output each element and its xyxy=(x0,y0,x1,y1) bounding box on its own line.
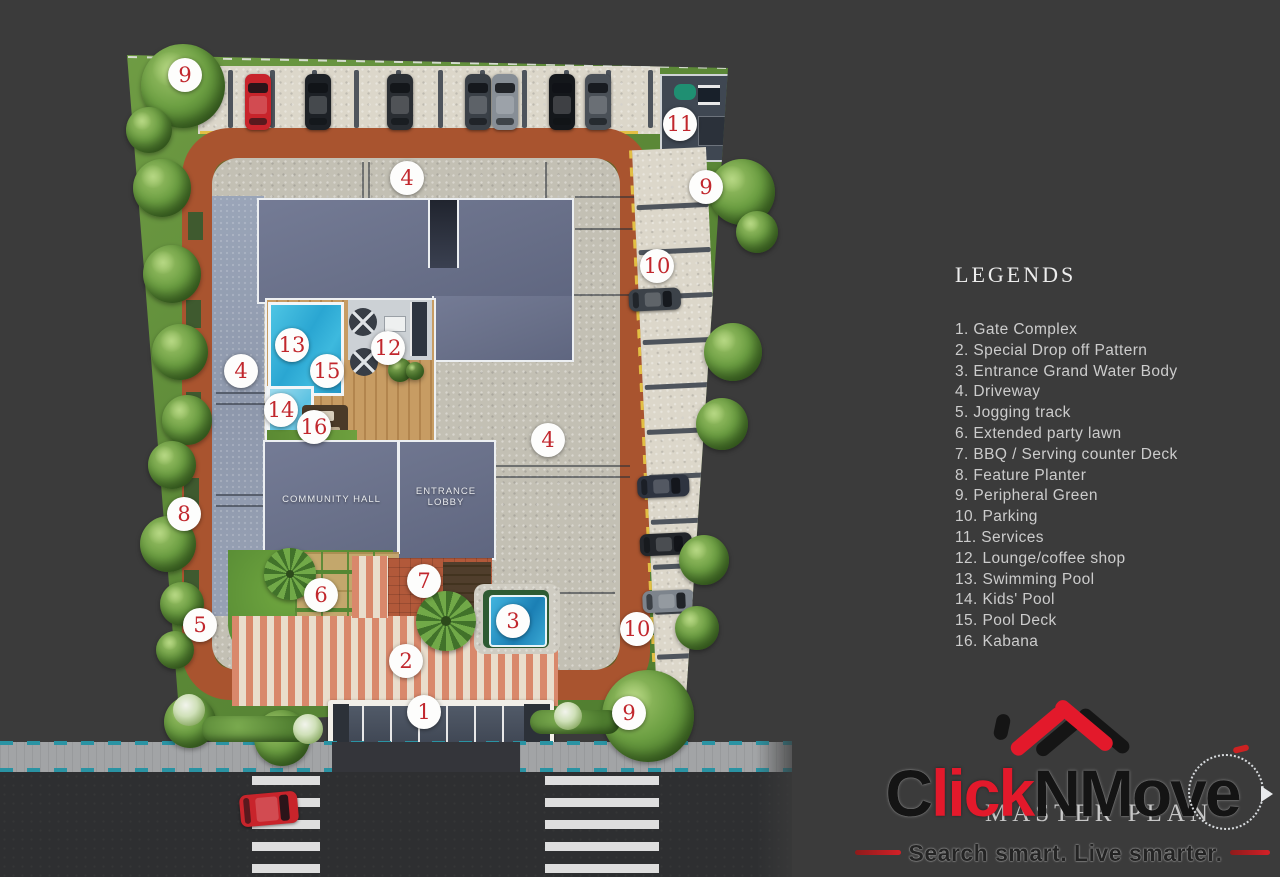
tagline-dash-right xyxy=(1230,850,1270,855)
legend-list: 1. Gate Complex2. Special Drop off Patte… xyxy=(955,320,1275,653)
plan-marker-3: 3 xyxy=(496,604,530,638)
building-notch xyxy=(428,200,459,268)
legend-item-6: 6. Extended party lawn xyxy=(955,424,1275,445)
feature-planter xyxy=(188,212,203,240)
legend-item-11: 11. Services xyxy=(955,528,1275,549)
flower-bush-icon xyxy=(173,694,205,726)
plan-marker-2: 2 xyxy=(389,644,423,678)
car-windshield xyxy=(279,794,290,821)
legend-item-1: 1. Gate Complex xyxy=(955,320,1275,341)
pavement-joint xyxy=(545,162,547,198)
plan-marker-9: 9 xyxy=(689,170,723,204)
services-equipment-icon xyxy=(674,84,696,100)
logo-seg-c: C xyxy=(885,756,931,830)
logo-tagline: Search smart. Live smarter. xyxy=(845,840,1280,867)
master-plan-page: COMMUNITY HALL ENTRANCE LOBBY xyxy=(0,0,1280,877)
crosswalk-right xyxy=(545,776,659,877)
tree-icon xyxy=(143,245,201,303)
stall-divider xyxy=(522,70,527,128)
entrance-lobby-label: ENTRANCE LOBBY xyxy=(400,486,492,508)
plan-marker-7: 7 xyxy=(407,564,441,598)
legend-item-13: 13. Swimming Pool xyxy=(955,570,1275,591)
community-hall-label: COMMUNITY HALL xyxy=(265,494,398,505)
car-rear-window xyxy=(243,798,251,824)
tree-icon xyxy=(133,159,191,217)
plan-marker-12: 12 xyxy=(371,331,405,365)
pavement-joint xyxy=(216,403,266,405)
tree-icon xyxy=(126,107,172,153)
plan-marker-10: 10 xyxy=(640,249,674,283)
legend-item-14: 14. Kids' Pool xyxy=(955,590,1275,611)
plan-marker-4: 4 xyxy=(224,354,258,388)
building-upper-block xyxy=(257,198,574,304)
tree-icon xyxy=(148,441,196,489)
legend-item-7: 7. BBQ / Serving counter Deck xyxy=(955,445,1275,466)
logo-seg-nmov: NMov xyxy=(1033,756,1205,830)
pavement-joint xyxy=(216,392,266,394)
plan-marker-6: 6 xyxy=(304,578,338,612)
building-upper-right-wing xyxy=(432,296,574,362)
plan-marker-14: 14 xyxy=(264,393,298,427)
legend-panel: LEGENDS 1. Gate Complex2. Special Drop o… xyxy=(955,262,1275,653)
stall-divider xyxy=(648,70,653,128)
stall-divider xyxy=(354,70,359,128)
palm-tree-icon xyxy=(416,591,476,651)
legend-item-3: 3. Entrance Grand Water Body xyxy=(955,362,1275,383)
tree-icon xyxy=(736,211,778,253)
logo-seg-lick: lick xyxy=(931,756,1033,830)
parked-car xyxy=(492,74,518,130)
tree-icon xyxy=(152,324,208,380)
parked-car xyxy=(549,74,575,130)
parked-car xyxy=(465,74,491,130)
logo-wordmark: ClickNMove xyxy=(845,760,1280,826)
plan-marker-13: 13 xyxy=(275,328,309,362)
coffee-counter xyxy=(410,302,427,356)
stall-divider xyxy=(228,70,233,128)
pavement-joint xyxy=(368,162,370,198)
plan-marker-1: 1 xyxy=(407,695,441,729)
parked-car xyxy=(585,74,611,130)
parasol-icon xyxy=(349,308,377,336)
parked-car xyxy=(305,74,331,130)
plan-marker-5: 5 xyxy=(183,608,217,642)
tree-icon xyxy=(679,535,729,585)
tree-icon xyxy=(162,395,212,445)
car-roof xyxy=(255,796,279,822)
services-unit xyxy=(698,116,726,146)
plan-marker-9: 9 xyxy=(168,58,202,92)
legend-item-5: 5. Jogging track xyxy=(955,403,1275,424)
parked-car xyxy=(245,74,271,130)
legend-item-12: 12. Lounge/coffee shop xyxy=(955,549,1275,570)
plan-marker-4: 4 xyxy=(390,161,424,195)
legend-item-8: 8. Feature Planter xyxy=(955,466,1275,487)
road xyxy=(0,772,792,877)
tree-icon xyxy=(675,606,719,650)
stall-divider xyxy=(438,70,443,128)
parked-car xyxy=(387,74,413,130)
legend-item-10: 10. Parking xyxy=(955,507,1275,528)
logo-compass-tick-icon xyxy=(1232,744,1249,754)
flower-bush-icon xyxy=(554,702,582,730)
parked-car xyxy=(637,474,690,498)
pavement-joint xyxy=(495,465,630,467)
tree-icon xyxy=(696,398,748,450)
logo-seg-e: e xyxy=(1205,760,1240,826)
logo-compass-ring-icon xyxy=(1188,754,1264,830)
clicknmove-logo: MASTER PLAN ClickNMove Search smart. Liv… xyxy=(845,698,1280,876)
plan-marker-15: 15 xyxy=(310,354,344,388)
plan-marker-9: 9 xyxy=(612,696,646,730)
pavement-joint xyxy=(216,505,266,507)
plan-marker-10: 10 xyxy=(620,612,654,646)
parked-car xyxy=(628,287,681,311)
plan-marker-11: 11 xyxy=(663,107,697,141)
road-fade xyxy=(756,738,816,877)
plan-marker-16: 16 xyxy=(297,410,331,444)
drop-off-pattern-upper xyxy=(352,556,388,618)
pavement-joint xyxy=(362,162,364,198)
feature-planter xyxy=(186,300,201,328)
tagline-dash-left xyxy=(855,850,901,855)
counter-appliance xyxy=(384,316,406,332)
legend-item-16: 16. Kabana xyxy=(955,632,1275,653)
plan-marker-4: 4 xyxy=(531,423,565,457)
legend-item-15: 15. Pool Deck xyxy=(955,611,1275,632)
pavement-joint xyxy=(216,494,266,496)
plan-marker-8: 8 xyxy=(167,497,201,531)
courtyard-plant xyxy=(406,362,424,380)
flower-bush-icon xyxy=(293,714,323,744)
legend-item-9: 9. Peripheral Green xyxy=(955,486,1275,507)
logo-compass-arrow-icon xyxy=(1261,786,1273,802)
services-vent-icon xyxy=(698,85,720,105)
tree-icon xyxy=(704,323,762,381)
road-car xyxy=(239,791,300,828)
pavement-joint xyxy=(495,476,630,478)
gate-apron xyxy=(332,742,520,772)
legend-item-4: 4. Driveway xyxy=(955,382,1275,403)
legend-item-2: 2. Special Drop off Pattern xyxy=(955,341,1275,362)
legend-title: LEGENDS xyxy=(955,262,1275,288)
